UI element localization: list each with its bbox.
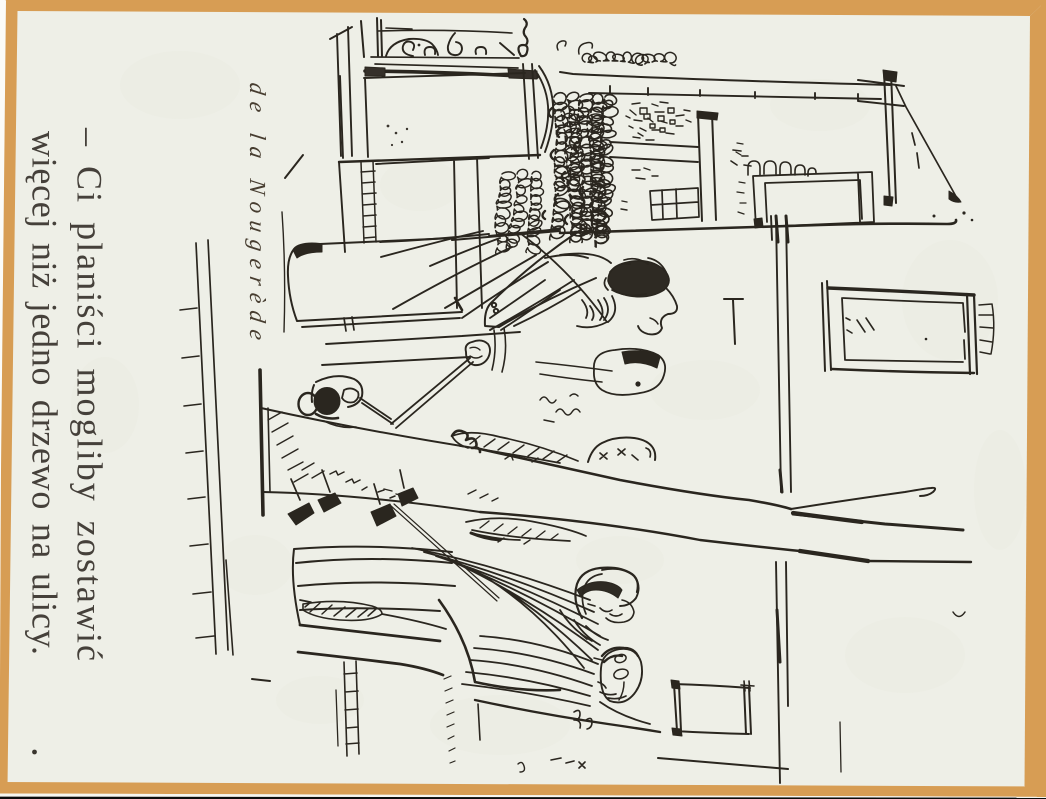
svg-text:– Ci planiści mogliby zost: – Ci planiści mogliby zostawić bbox=[70, 127, 110, 661]
svg-text:więcej niż jedno drzewo na ul: więcej niż jedno drzewo na ulicy. bbox=[25, 131, 65, 655]
svg-text:de la Nougerède: de la Nougerède bbox=[245, 81, 271, 349]
